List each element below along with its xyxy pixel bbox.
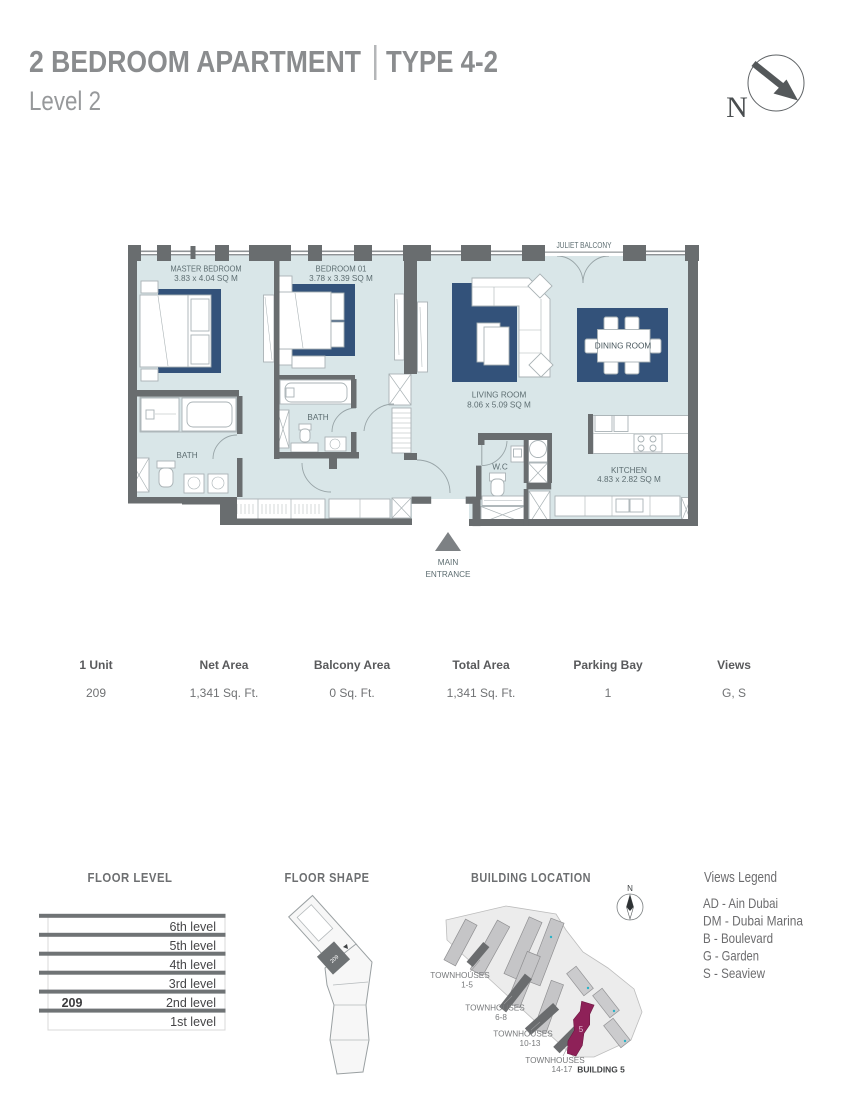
svg-text:ENTRANCE: ENTRANCE <box>425 570 471 579</box>
svg-text:3rd level: 3rd level <box>169 977 216 991</box>
svg-text:1 Unit: 1 Unit <box>79 658 112 672</box>
svg-text:3.78 x 3.39 SQ M: 3.78 x 3.39 SQ M <box>309 274 373 283</box>
svg-text:8.06 x 5.09 SQ M: 8.06 x 5.09 SQ M <box>467 401 531 410</box>
svg-text:2nd level: 2nd level <box>166 996 216 1010</box>
svg-text:BUILDING LOCATION: BUILDING LOCATION <box>471 870 591 885</box>
svg-text:1-5: 1-5 <box>461 981 473 990</box>
svg-text:6-8: 6-8 <box>495 1013 507 1022</box>
svg-text:JULIET BALCONY: JULIET BALCONY <box>557 241 612 250</box>
svg-text:Views Legend: Views Legend <box>704 870 777 886</box>
svg-text:5th level: 5th level <box>169 939 216 953</box>
svg-text:N: N <box>726 91 748 124</box>
svg-text:Parking Bay: Parking Bay <box>573 658 643 672</box>
svg-text:2 BEDROOM APARTMENT: 2 BEDROOM APARTMENT <box>29 44 361 79</box>
svg-text:1st level: 1st level <box>170 1015 216 1029</box>
svg-text:Total Area: Total Area <box>452 658 510 672</box>
svg-text:N: N <box>627 884 633 893</box>
svg-text:Net Area: Net Area <box>200 658 249 672</box>
svg-text:KITCHEN: KITCHEN <box>611 466 647 475</box>
svg-text:Views: Views <box>717 658 751 672</box>
svg-text:1,341 Sq. Ft.: 1,341 Sq. Ft. <box>447 686 516 700</box>
svg-text:14-17: 14-17 <box>552 1065 573 1074</box>
svg-text:5: 5 <box>579 1025 584 1034</box>
svg-text:DM - Dubai Marina: DM - Dubai Marina <box>703 913 803 929</box>
svg-text:TOWNHOUSES: TOWNHOUSES <box>430 971 490 980</box>
svg-text:W.C: W.C <box>492 463 508 472</box>
svg-text:FLOOR LEVEL: FLOOR LEVEL <box>88 870 173 885</box>
svg-text:BATH: BATH <box>176 451 197 460</box>
svg-text:209: 209 <box>86 686 106 700</box>
svg-text:Balcony Area: Balcony Area <box>314 658 391 672</box>
svg-text:BUILDING 5: BUILDING 5 <box>577 1065 625 1075</box>
svg-text:G, S: G, S <box>722 686 746 700</box>
svg-text:BATH: BATH <box>307 413 328 422</box>
svg-text:0 Sq. Ft.: 0 Sq. Ft. <box>329 686 374 700</box>
svg-text:B - Boulevard: B - Boulevard <box>703 930 773 946</box>
svg-text:TOWNHOUSES: TOWNHOUSES <box>493 1030 553 1039</box>
svg-text:AD - Ain Dubai: AD - Ain Dubai <box>703 895 778 911</box>
svg-text:1: 1 <box>605 686 612 700</box>
svg-text:MAIN: MAIN <box>438 558 459 567</box>
svg-text:3.83 x 4.04 SQ M: 3.83 x 4.04 SQ M <box>174 274 238 283</box>
svg-text:S - Seaview: S - Seaview <box>703 965 766 981</box>
svg-text:6th level: 6th level <box>169 920 216 934</box>
svg-text:BEDROOM 01: BEDROOM 01 <box>316 265 367 274</box>
svg-text:4.83 x 2.82 SQ M: 4.83 x 2.82 SQ M <box>597 475 661 484</box>
svg-text:1,341 Sq. Ft.: 1,341 Sq. Ft. <box>190 686 259 700</box>
svg-text:LIVING ROOM: LIVING ROOM <box>472 391 527 400</box>
svg-text:FLOOR SHAPE: FLOOR SHAPE <box>285 870 370 885</box>
svg-text:209: 209 <box>62 996 83 1010</box>
svg-text:MASTER BEDROOM: MASTER BEDROOM <box>171 265 242 274</box>
svg-text:G - Garden: G - Garden <box>703 948 759 964</box>
svg-text:TYPE 4-2: TYPE 4-2 <box>386 44 498 79</box>
svg-text:Level 2: Level 2 <box>29 86 101 116</box>
svg-text:TOWNHOUSES: TOWNHOUSES <box>525 1056 585 1065</box>
svg-text:10-13: 10-13 <box>520 1039 541 1048</box>
svg-text:TOWNHOUSES: TOWNHOUSES <box>465 1004 525 1013</box>
svg-text:4th level: 4th level <box>169 958 216 972</box>
svg-text:DINING ROOM: DINING ROOM <box>595 342 652 351</box>
